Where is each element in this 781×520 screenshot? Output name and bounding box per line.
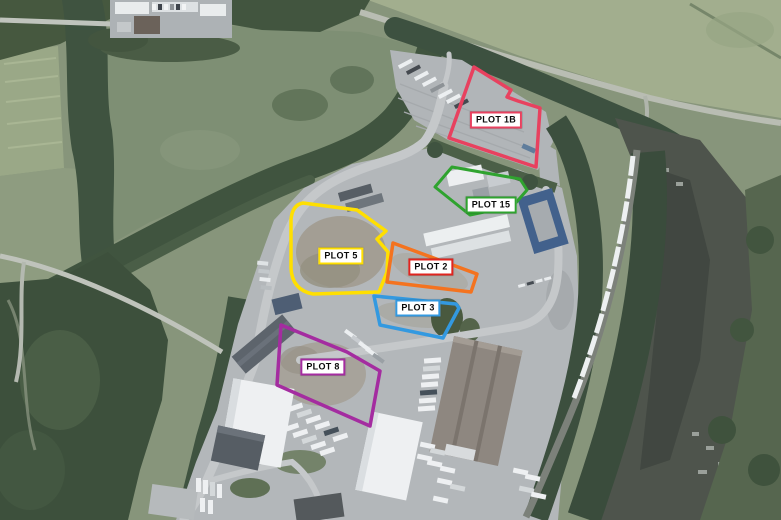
aerial-site-plan: PLOT 1B PLOT 15 PLOT 5 PLOT 2 PLOT 3 PLO… [0, 0, 781, 520]
plot-15-label: PLOT 15 [466, 197, 517, 214]
plot-8-label: PLOT 8 [300, 359, 345, 376]
factory-north-west [110, 0, 232, 38]
plot-1b-label: PLOT 1B [470, 112, 522, 129]
plot-3-label: PLOT 3 [395, 300, 440, 317]
bottom-left-yard [148, 484, 198, 520]
plot-5-label: PLOT 5 [318, 248, 363, 265]
plot-2-label: PLOT 2 [408, 259, 453, 276]
aerial-photo [0, 0, 781, 520]
